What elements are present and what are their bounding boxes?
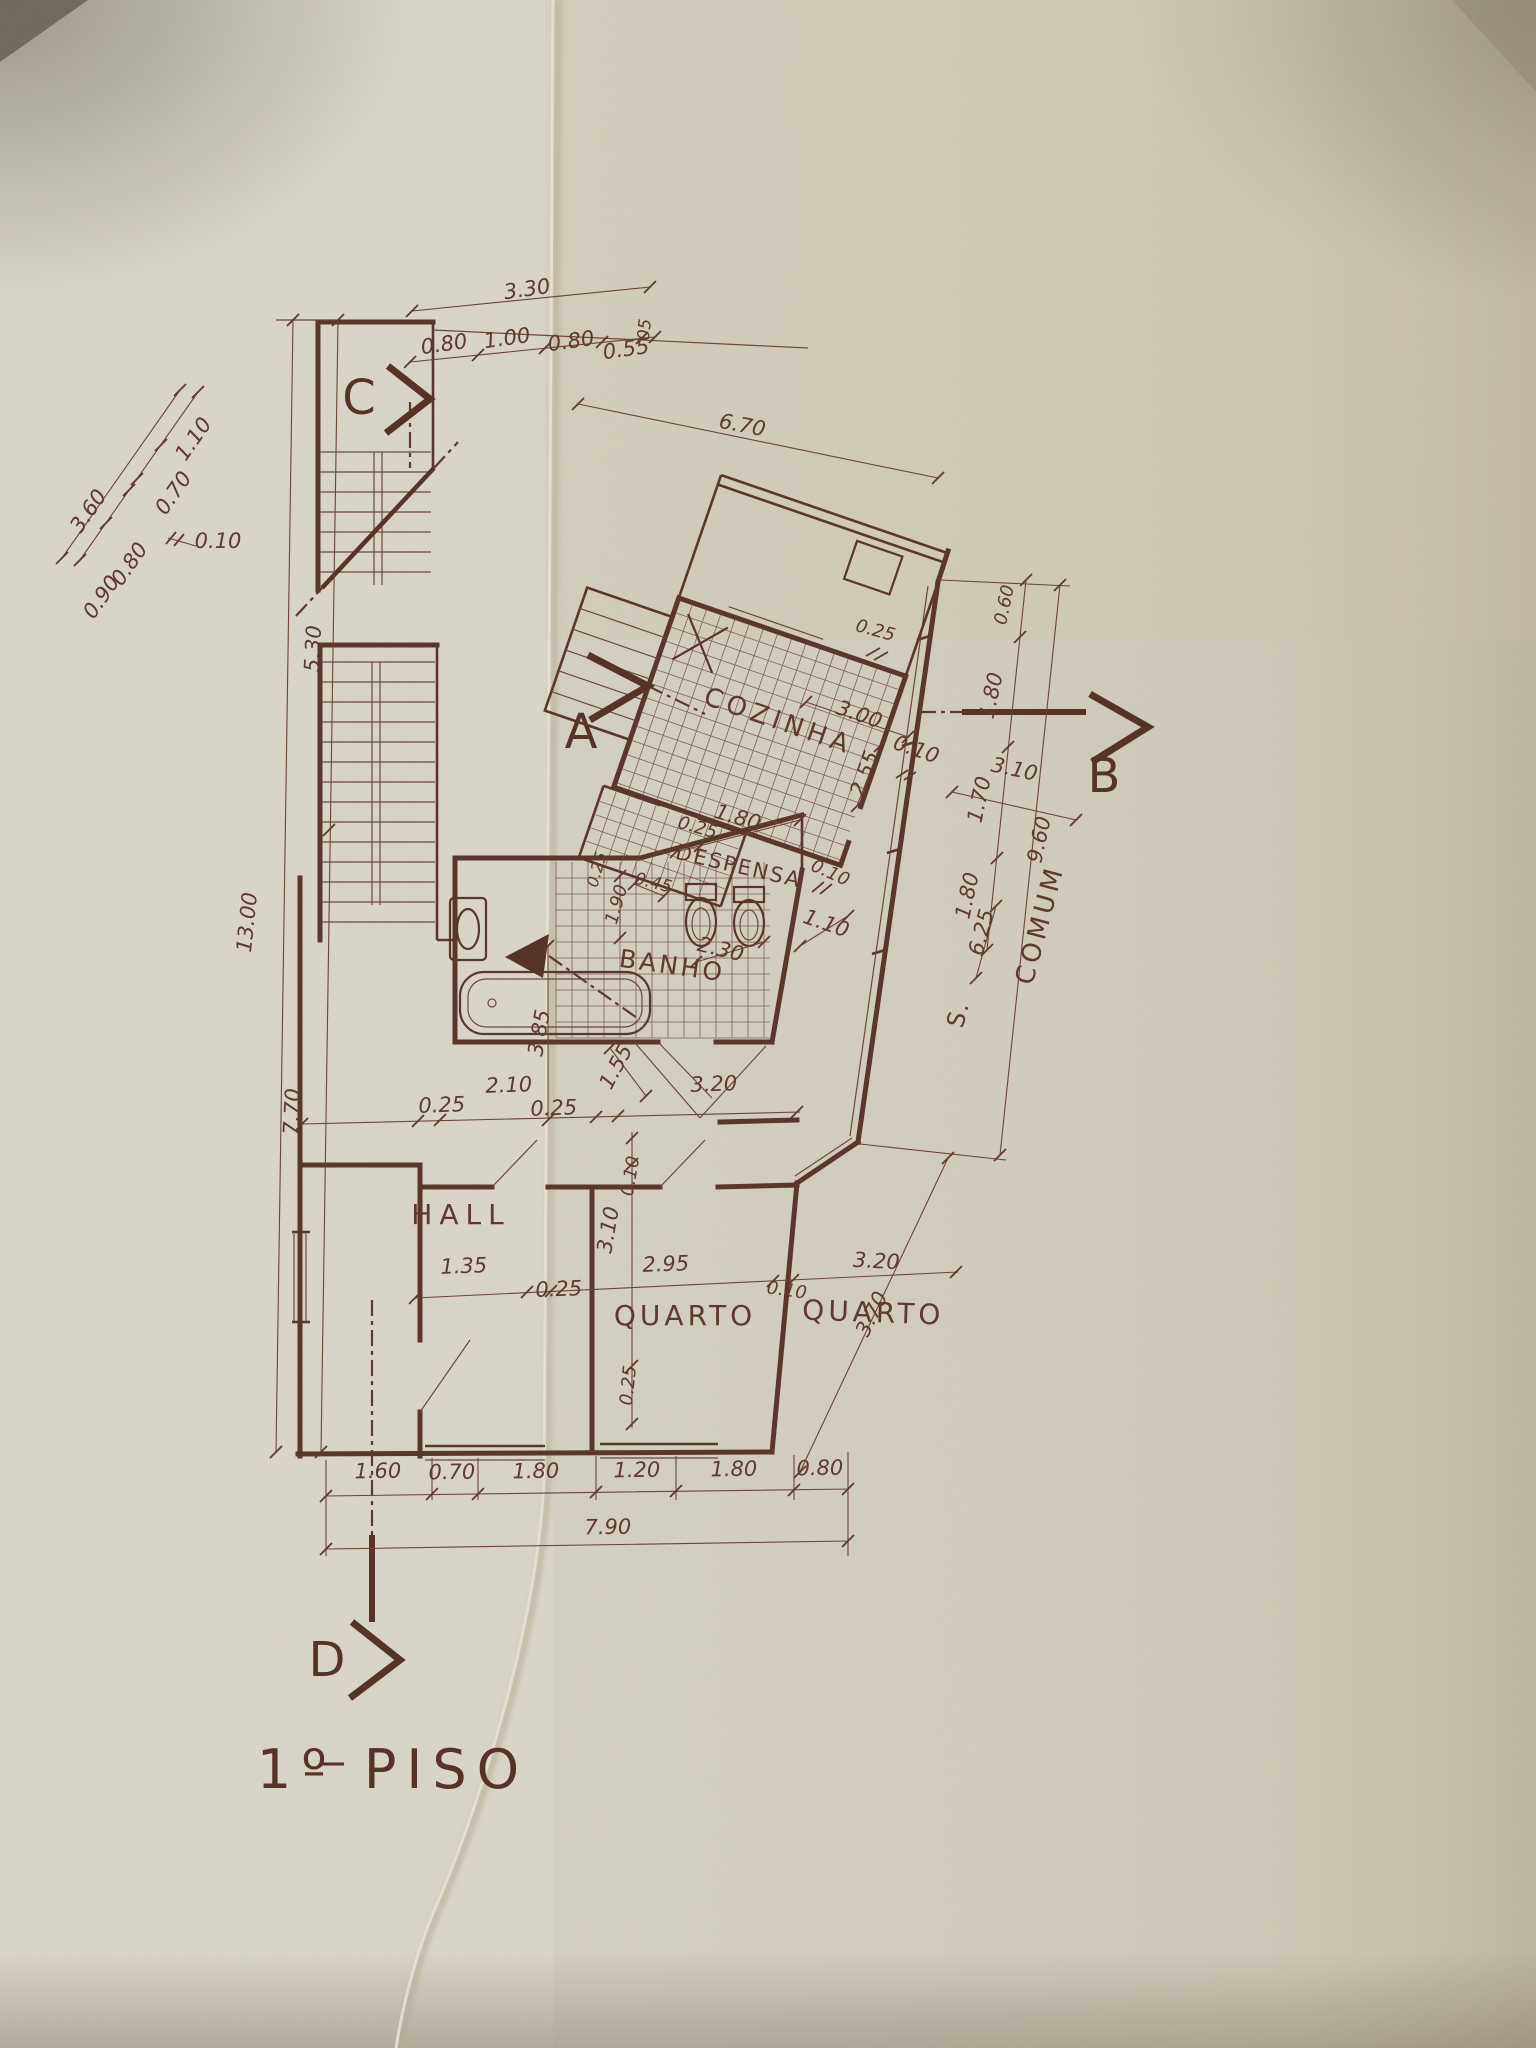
room-label: HALL: [411, 1198, 510, 1231]
sheet-title: 1º PISO: [257, 1738, 529, 1801]
dimension-label: 3.20: [690, 1071, 738, 1097]
dimension-label: 3.20: [852, 1248, 900, 1274]
dimension-label: 0.25: [530, 1095, 578, 1121]
dimension-label: 1.80: [512, 1459, 559, 1484]
room-label: QUARTO: [614, 1299, 756, 1332]
section-marker-letter: D: [309, 1632, 346, 1688]
section-marker-letter: B: [1088, 748, 1121, 804]
section-marker-letter: A: [565, 704, 598, 760]
dimension-label: 0.80: [796, 1456, 843, 1481]
room-label: QUARTO: [802, 1294, 945, 1332]
dimension-label: 1.80: [710, 1457, 757, 1482]
dimension-label: 0.10: [195, 529, 242, 553]
dimension-label: 7.90: [584, 1515, 631, 1540]
dimension-label: 2.95: [642, 1251, 690, 1277]
dimension-label: 0.25: [616, 1364, 641, 1406]
dimension-label: 7.70: [279, 1088, 305, 1136]
dimension-label: 0.25: [418, 1092, 466, 1118]
paper-grain: [0, 0, 1536, 2048]
section-marker-letter: C: [342, 370, 376, 426]
photographed-blueprint-sheet: 3.300.801.000.800.55051.100.700.100.800.…: [0, 0, 1536, 2048]
dimension-label: 0.25: [535, 1276, 583, 1302]
paper-background: [0, 0, 1536, 2048]
dimension-label: 1.60: [354, 1459, 401, 1484]
dimension-label: 0.70: [428, 1460, 475, 1485]
floorplan-canvas: 3.300.801.000.800.55051.100.700.100.800.…: [0, 0, 1536, 2048]
dimension-label: 1.20: [613, 1458, 660, 1483]
dimension-label: 05: [634, 318, 656, 341]
dimension-label: 1.35: [440, 1253, 488, 1279]
dimension-label: 5.30: [300, 625, 326, 673]
dimension-label: 2.10: [485, 1072, 533, 1098]
